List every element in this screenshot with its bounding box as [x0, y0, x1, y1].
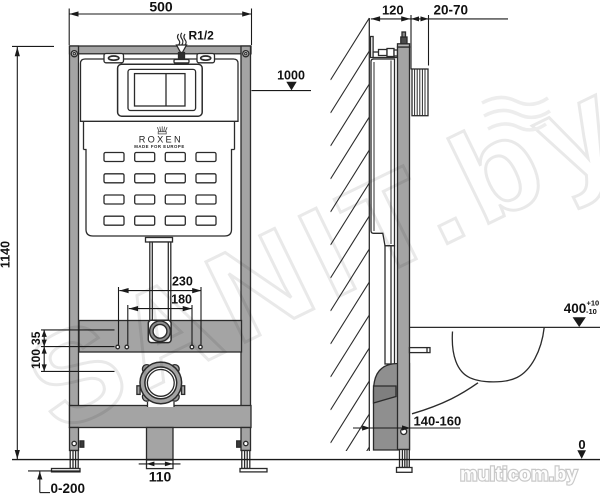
svg-text:400: 400 [564, 301, 587, 316]
svg-text:0-200: 0-200 [51, 481, 86, 496]
svg-text:0: 0 [578, 437, 585, 452]
svg-text:120: 120 [382, 3, 404, 18]
svg-text:140-160: 140-160 [414, 414, 462, 429]
svg-text:110: 110 [149, 469, 172, 485]
svg-text:20-70: 20-70 [434, 3, 469, 18]
svg-text:R1/2: R1/2 [189, 29, 215, 43]
svg-text:1140: 1140 [0, 241, 13, 268]
svg-text:-10: -10 [586, 307, 597, 316]
svg-text:500: 500 [149, 0, 173, 15]
svg-text:multicom.by: multicom.by [460, 463, 578, 485]
svg-text:MADE FOR EUROPE: MADE FOR EUROPE [134, 144, 185, 149]
svg-text:1000: 1000 [277, 69, 305, 83]
